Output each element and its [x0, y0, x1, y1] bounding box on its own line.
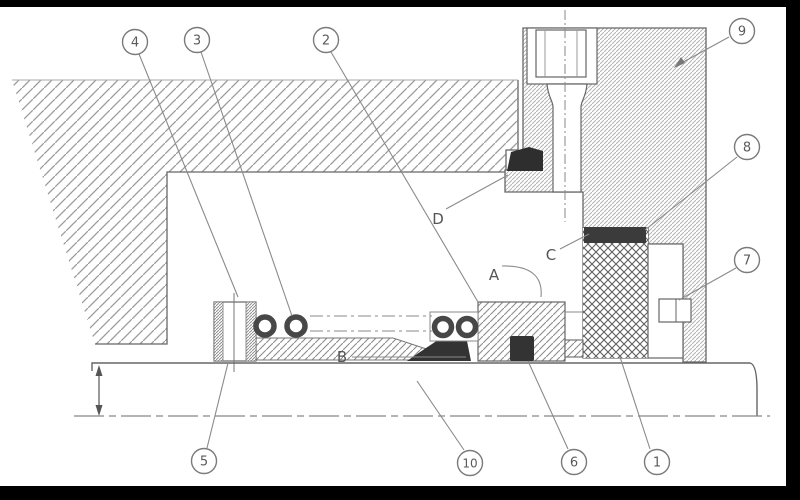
radius-arrow-up — [96, 365, 103, 376]
callout-label: 5 — [200, 455, 208, 470]
seat-crosshatch — [583, 228, 648, 358]
callout-part-5: 5 — [192, 449, 217, 474]
collar-right-strip — [246, 302, 256, 361]
frame-top-bar — [0, 0, 800, 7]
callout-part-7: 7 — [735, 248, 760, 273]
leader-zone-a — [502, 266, 541, 297]
shaft-oring — [510, 336, 534, 361]
callout-part-2: 2 — [314, 28, 339, 53]
callout-label: 4 — [131, 36, 139, 51]
zone-letter-b: B — [337, 348, 347, 366]
seal-ring-nose — [565, 340, 583, 357]
spring-coil — [287, 317, 305, 335]
zone-letter-c: C — [546, 246, 556, 264]
engineering-drawing-page: 4 3 2 9 8 7 5 10 — [0, 0, 800, 500]
callout-part-9: 9 — [730, 19, 755, 44]
drive-collar-section — [214, 293, 256, 372]
callout-label: 6 — [570, 456, 578, 471]
zone-letter-a: A — [489, 266, 500, 284]
callout-label: 10 — [462, 457, 477, 471]
callout-label: 7 — [743, 254, 751, 269]
rotating-ring-section — [478, 302, 583, 361]
leader-zone-d — [446, 175, 508, 209]
shaft-section — [74, 363, 770, 416]
shaft-outline — [92, 363, 757, 416]
spring-coil — [256, 317, 274, 335]
frame-right-bar — [786, 0, 800, 500]
callout-part-1: 1 — [645, 450, 670, 475]
callout-part-3: 3 — [185, 28, 210, 53]
leader-part-1 — [620, 357, 650, 449]
callout-label: 3 — [193, 34, 201, 49]
callout-label: 8 — [743, 141, 751, 156]
zone-letter-d: D — [432, 210, 444, 228]
bolt-shank — [547, 84, 587, 192]
callout-label: 2 — [322, 34, 330, 49]
callout-part-10: 10 — [458, 451, 483, 476]
spring-phantom-lines — [310, 316, 432, 331]
leader-part-5 — [207, 363, 228, 448]
callout-label: 9 — [738, 25, 746, 40]
callout-part-6: 6 — [562, 450, 587, 475]
radius-arrow-down — [96, 405, 103, 416]
stationary-seat-section — [583, 227, 691, 358]
seal-section-drawing: 4 3 2 9 8 7 5 10 — [0, 0, 800, 500]
bolt-head — [536, 30, 586, 77]
callout-part-8: 8 — [735, 135, 760, 160]
collar-left-strip — [214, 302, 223, 361]
leader-part-6 — [528, 361, 568, 449]
anti-rotation-pin — [659, 299, 691, 322]
callout-part-4: 4 — [123, 30, 148, 55]
spring-section — [256, 312, 478, 341]
callout-label: 1 — [653, 456, 661, 471]
seat-oring — [584, 227, 646, 243]
frame-bottom-bar — [0, 486, 800, 500]
